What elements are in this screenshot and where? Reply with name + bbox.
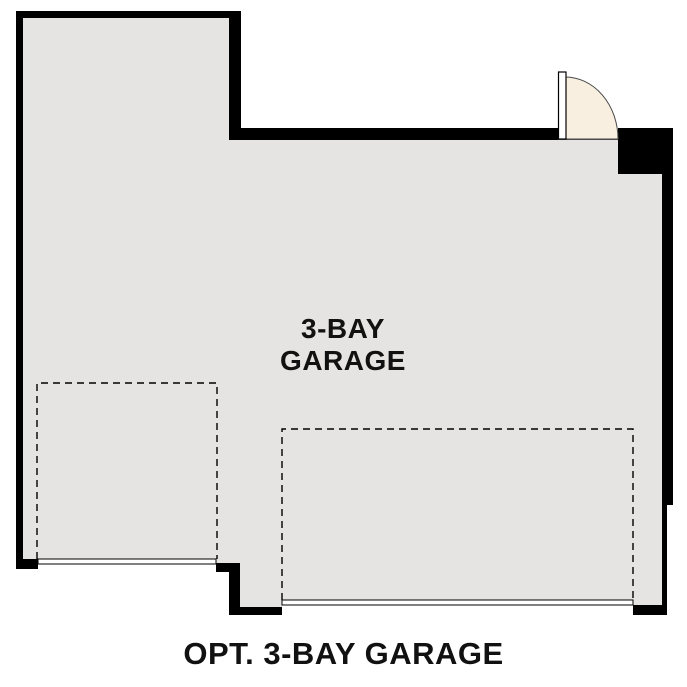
wall-step-vertical — [229, 563, 240, 607]
wall-corner-block — [618, 128, 673, 174]
wall-left — [16, 11, 23, 569]
floor-plan-page: 3-BAY GARAGE OPT. 3-BAY GARAGE — [0, 0, 687, 687]
wall-bottom-left — [16, 559, 38, 569]
wall-right-lower — [662, 505, 667, 615]
wall-garage-top — [229, 128, 558, 140]
room-label-line1: 3-BAY — [193, 313, 493, 345]
wall-bottom-right — [633, 605, 667, 615]
entry-door-swing-icon — [558, 72, 618, 139]
wall-step-bottom — [229, 607, 282, 615]
room-label: 3-BAY GARAGE — [193, 313, 493, 377]
garage-door-opening-left — [38, 559, 216, 564]
door-leaf — [559, 72, 567, 139]
wall-notch-vertical — [229, 11, 241, 140]
wall-top — [16, 11, 241, 18]
door-swing-arc — [565, 77, 618, 139]
plan-caption: OPT. 3-BAY GARAGE — [0, 636, 687, 672]
room-label-line2: GARAGE — [193, 345, 493, 377]
garage-door-opening-right — [282, 600, 633, 605]
wall-right-upper — [662, 174, 673, 505]
